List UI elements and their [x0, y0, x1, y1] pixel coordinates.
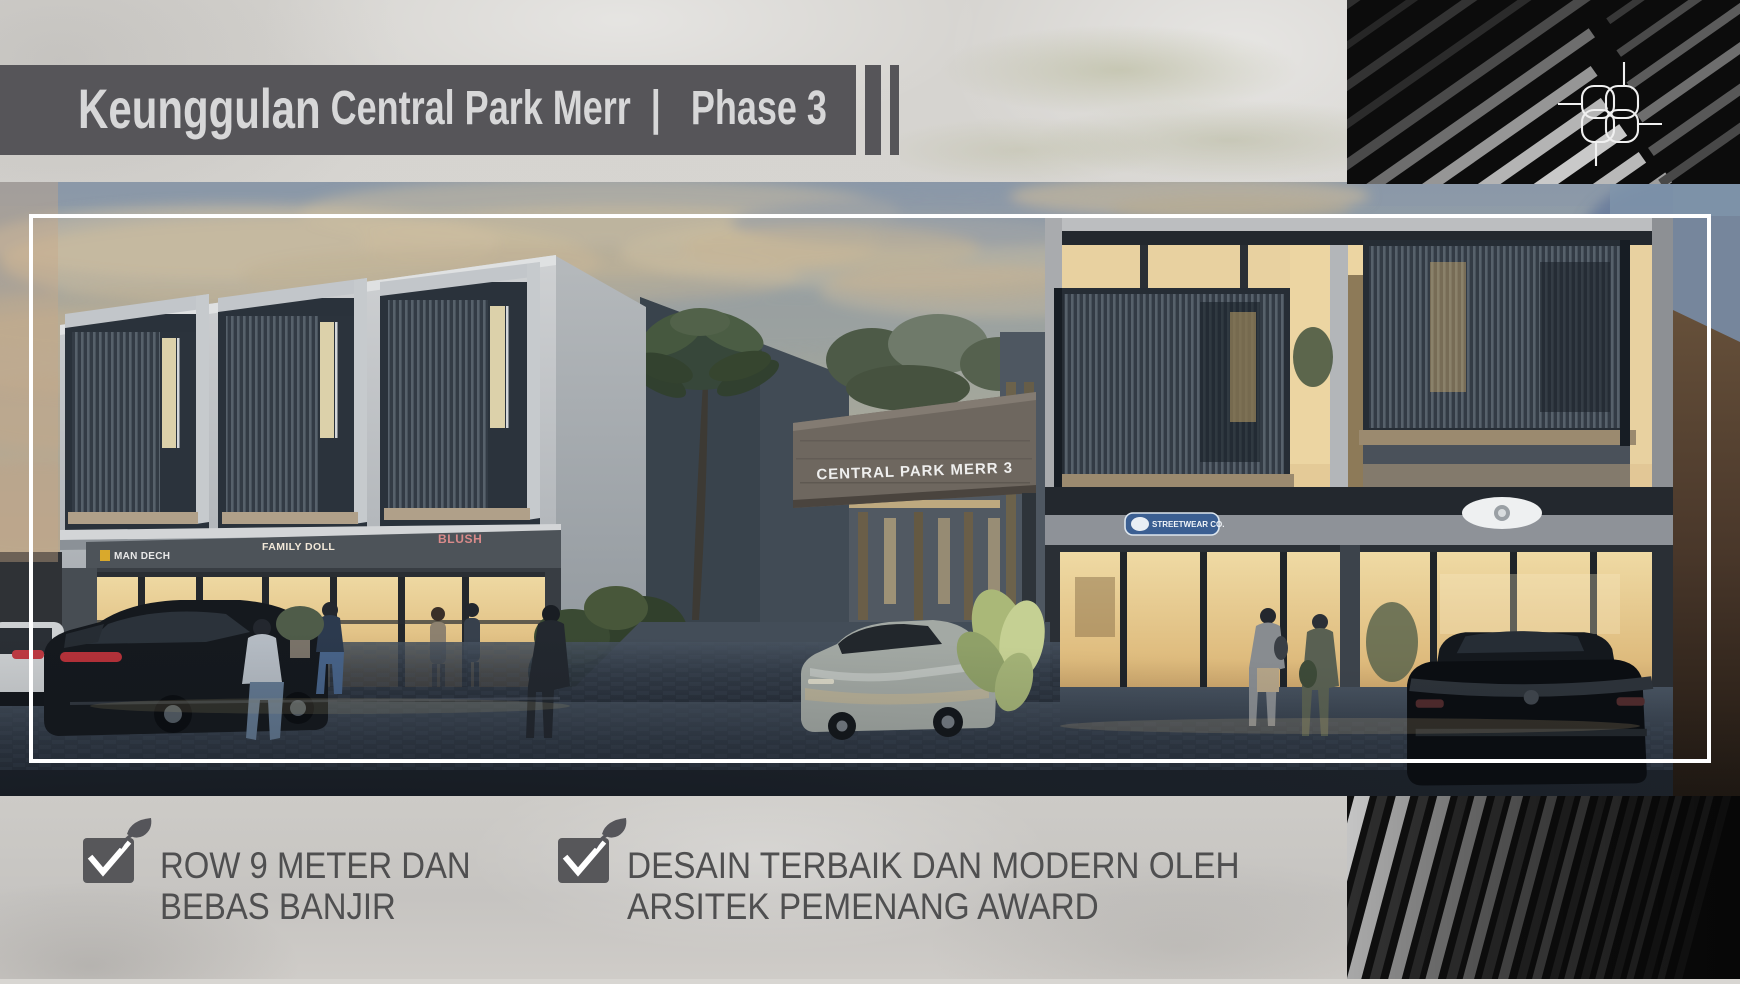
svg-text:STREETWEAR CO.: STREETWEAR CO.: [1152, 520, 1224, 529]
svg-text:MAN DECH: MAN DECH: [114, 551, 170, 562]
svg-text:FAMILY DOLL: FAMILY DOLL: [262, 541, 335, 553]
svg-text:BLUSH: BLUSH: [438, 532, 482, 546]
